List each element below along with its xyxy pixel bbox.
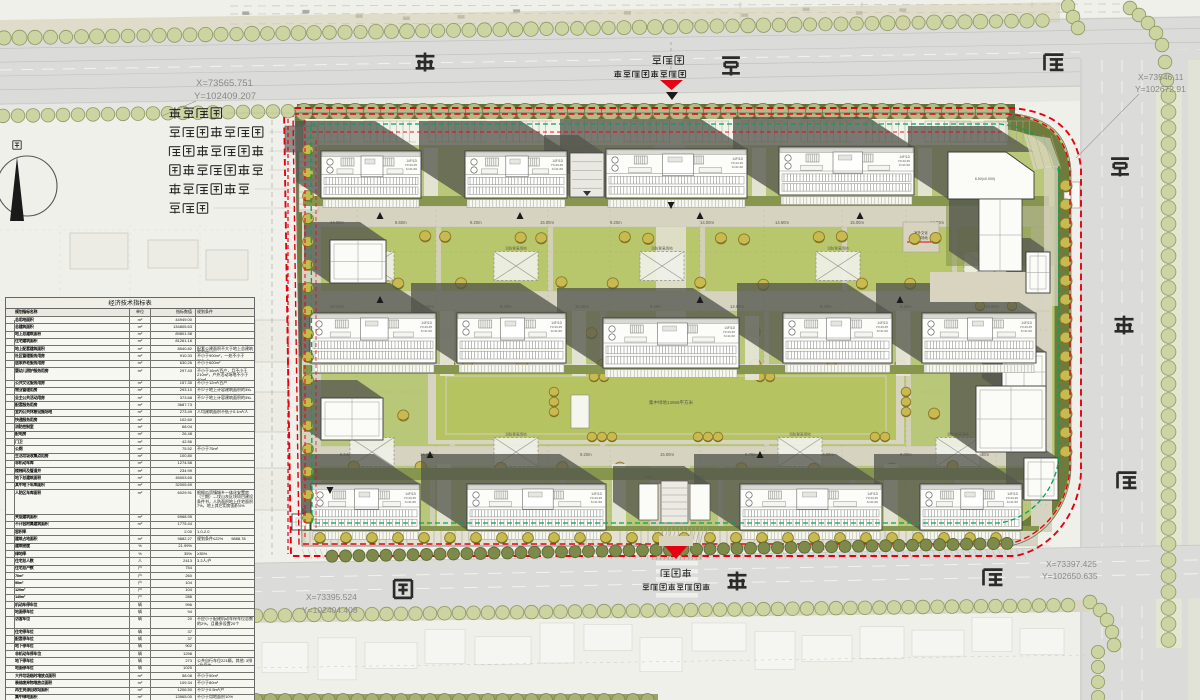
svg-text:b=41.60: b=41.60 — [867, 500, 879, 504]
svg-text:X=73397.425: X=73397.425 — [1046, 559, 1097, 569]
svg-text:消防登高场地: 消防登高场地 — [651, 246, 673, 251]
svg-text:14.60m: 14.60m — [775, 220, 789, 225]
svg-text:b=41.60: b=41.60 — [551, 329, 563, 333]
svg-text:X=73565.751: X=73565.751 — [196, 78, 253, 89]
svg-text:b=41.60: b=41.60 — [1021, 329, 1033, 333]
svg-text:b=41.60: b=41.60 — [421, 329, 433, 333]
svg-text:b=41.60: b=41.60 — [591, 500, 603, 504]
svg-text:15.00m: 15.00m — [540, 220, 554, 225]
svg-text:6.50(±0.000): 6.50(±0.000) — [975, 177, 995, 181]
svg-text:14.00m: 14.00m — [700, 220, 714, 225]
svg-text:Y=102404.408: Y=102404.408 — [302, 605, 358, 615]
svg-text:9.20m: 9.20m — [470, 220, 482, 225]
svg-text:15.00m: 15.00m — [850, 220, 864, 225]
svg-text:X=73546.11: X=73546.11 — [1138, 72, 1184, 82]
svg-text:X=73395.524: X=73395.524 — [306, 592, 357, 602]
svg-text:消防登高场地: 消防登高场地 — [789, 432, 811, 437]
svg-text:b=41.60: b=41.60 — [552, 167, 564, 171]
svg-text:b=41.60: b=41.60 — [877, 329, 889, 333]
svg-text:b=41.60: b=41.60 — [899, 163, 911, 167]
svg-text:7.60m: 7.60m — [643, 475, 653, 479]
svg-text:Y=102672.91: Y=102672.91 — [1135, 84, 1186, 94]
svg-text:b=41.60: b=41.60 — [732, 165, 744, 169]
svg-text:集中绿地13965平方米: 集中绿地13965平方米 — [649, 399, 694, 406]
svg-text:b=41.60: b=41.60 — [405, 500, 417, 504]
svg-text:Y=102650.635: Y=102650.635 — [1042, 571, 1098, 581]
svg-text:消防登高场地: 消防登高场地 — [827, 246, 849, 251]
svg-text:b=41.60: b=41.60 — [724, 334, 736, 338]
svg-text:9.20m: 9.20m — [610, 220, 622, 225]
svg-text:b=41.60: b=41.60 — [406, 167, 418, 171]
svg-text:消防登高场地: 消防登高场地 — [505, 432, 527, 437]
svg-text:15.00m: 15.00m — [660, 452, 674, 457]
svg-text:9.20m: 9.20m — [580, 452, 592, 457]
svg-text:b=41.60: b=41.60 — [1007, 500, 1019, 504]
svg-text:7.60m: 7.60m — [695, 475, 705, 479]
svg-text:消防登高场地: 消防登高场地 — [505, 246, 527, 251]
svg-text:Y=102409.207: Y=102409.207 — [194, 91, 256, 102]
svg-text:8.60m: 8.60m — [395, 220, 407, 225]
